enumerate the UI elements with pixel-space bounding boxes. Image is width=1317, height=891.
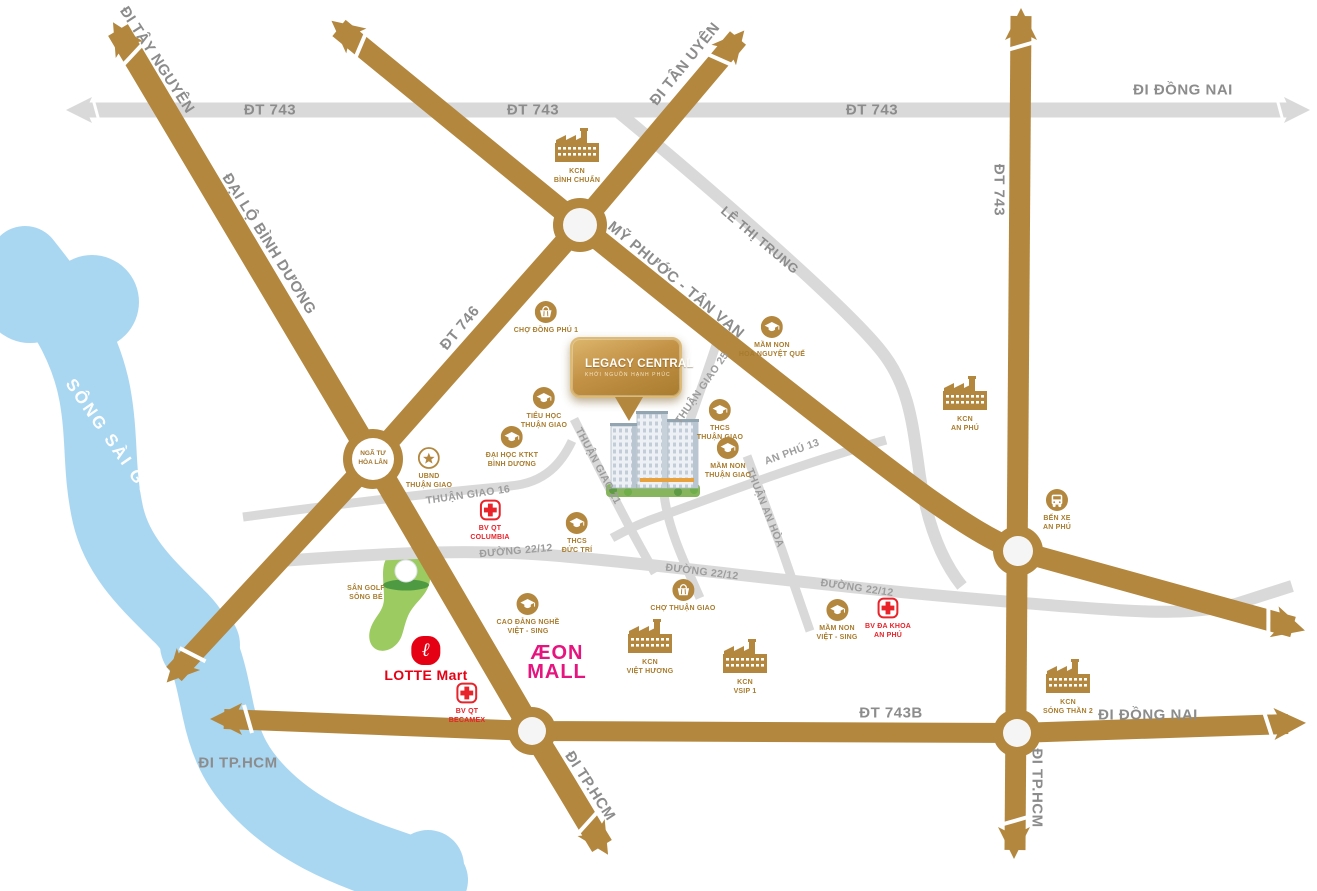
road-label-dt743-right: ĐT 743	[991, 164, 1008, 216]
road-label-di-dong-nai-bottom: ĐI ĐỒNG NAI	[1098, 707, 1198, 724]
school-icon	[709, 399, 731, 421]
factory-icon	[720, 639, 770, 675]
project-title: LEGACY CENTRAL	[585, 358, 694, 370]
landmark-label: MẦM NON HOA NGUYỆT QUẾ	[739, 341, 805, 359]
landmark-kcn-song-than-2: KCN SÓNG THẦN 2	[1043, 659, 1093, 716]
landmark-label: MẦM NON THUẬN GIAO	[705, 462, 751, 480]
landmark-bv-da-khoa-an-phu: BV ĐA KHOA AN PHÚ	[865, 597, 911, 640]
landmark-label: KCN BÌNH CHUẨN	[554, 167, 600, 185]
road-label-dt743-top-3: ĐT 743	[846, 102, 898, 119]
landmark-label: BẾN XE AN PHÚ	[1043, 514, 1071, 532]
road-label-dt743-top-1: ĐT 743	[244, 102, 296, 119]
school-icon	[517, 593, 539, 615]
project-logo-card: LEGACY CENTRAL KHỞI NGUỒN HẠNH PHÚC	[570, 337, 682, 398]
bus-icon	[1046, 489, 1068, 511]
landmark-kcn-an-phu: KCN AN PHÚ	[940, 376, 990, 433]
landmark-label: BV QT BECAMEX	[449, 707, 485, 725]
landmark-ben-xe-an-phu: BẾN XE AN PHÚ	[1043, 489, 1071, 532]
landmark-label: UBND THUẬN GIAO	[406, 472, 452, 490]
landmark-label: THCS ĐỨC TRÍ	[562, 537, 593, 555]
landmark-label: KCN AN PHÚ	[951, 415, 979, 433]
school-icon	[761, 316, 783, 338]
road-label-di-tphcm-left: ĐI TP.HCM	[198, 755, 277, 772]
landmark-label: BV ĐA KHOA AN PHÚ	[865, 622, 911, 640]
landmark-cao-dang-nghe-viet-sing: CAO ĐẲNG NGHỀ VIỆT - SING	[497, 593, 560, 636]
landmark-tieu-hoc-thuan-giao: TIỂU HỌC THUẬN GIAO	[521, 387, 567, 430]
school-icon	[826, 599, 848, 621]
school-icon	[717, 437, 739, 459]
landmark-lotte-mart: ℓ LOTTE Mart	[384, 636, 467, 683]
aeon-logo-line2: MALL	[527, 663, 587, 682]
market-icon	[672, 579, 694, 601]
golf-ball-icon	[395, 560, 417, 582]
landmark-kcn-vsip-1: KCN VSIP 1	[720, 639, 770, 696]
school-icon	[501, 426, 523, 448]
landmark-label: CHỢ THUẬN GIAO	[650, 604, 715, 613]
factory-icon	[625, 619, 675, 655]
lotte-logo-icon: ℓ	[412, 636, 441, 665]
road-label-di-tphcm-right: ĐI TP.HCM	[1029, 748, 1046, 827]
landmark-kcn-binh-chuan: KCN BÌNH CHUẨN	[552, 128, 602, 185]
landmark-label: CHỢ ĐỒNG PHÚ 1	[514, 326, 578, 335]
project-building	[606, 411, 700, 497]
landmark-san-golf-song-be: SÂN GOLF SÔNG BÉ	[347, 581, 385, 602]
landmark-thcs-duc-tri: THCS ĐỨC TRÍ	[562, 512, 593, 555]
landmark-label: KCN VSIP 1	[734, 678, 757, 696]
landmark-label: CAO ĐẲNG NGHỀ VIỆT - SING	[497, 618, 560, 636]
factory-icon	[1043, 659, 1093, 695]
nga-tu-hoa-lan-label: NGÃ TƯ HÒA LÂN	[358, 450, 387, 468]
legacy-central-location-map: ĐI TÂY NGUYÊNĐT 743ĐT 743ĐT 743ĐI ĐỒNG N…	[0, 0, 1317, 891]
road-label-dt743b: ĐT 743B	[859, 705, 923, 722]
landmark-label: SÂN GOLF SÔNG BÉ	[347, 584, 385, 602]
landmark-thcs-thuan-giao: THCS THUẬN GIAO	[697, 399, 743, 442]
school-icon	[533, 387, 555, 409]
hospital-icon	[479, 499, 501, 521]
star-icon	[418, 447, 440, 469]
landmark-cho-dong-phu-1: CHỢ ĐỒNG PHÚ 1	[514, 301, 578, 335]
project-subtitle: KHỞI NGUỒN HẠNH PHÚC	[585, 372, 694, 378]
lotte-mart-label: LOTTE Mart	[384, 667, 467, 683]
landmark-label: KCN VIỆT HƯƠNG	[627, 658, 674, 676]
road-label-di-dong-nai-top: ĐI ĐỒNG NAI	[1133, 82, 1233, 99]
landmark-dai-hoc-ktkt-binh-duong: ĐẠI HỌC KTKT BÌNH DƯƠNG	[486, 426, 539, 469]
landmark-label: ĐẠI HỌC KTKT BÌNH DƯƠNG	[486, 451, 539, 469]
hospital-icon	[877, 597, 899, 619]
landmark-ubnd-thuan-giao: UBND THUẬN GIAO	[406, 447, 452, 490]
landmark-mam-non-viet-sing: MẦM NON VIỆT - SING	[816, 599, 857, 642]
landmark-mam-non-hoa-nguyet-que: MẦM NON HOA NGUYỆT QUẾ	[739, 316, 805, 359]
factory-icon	[940, 376, 990, 412]
hospital-icon	[456, 682, 478, 704]
school-icon	[566, 512, 588, 534]
landmark-mam-non-thuan-giao: MẦM NON THUẬN GIAO	[705, 437, 751, 480]
factory-icon	[552, 128, 602, 164]
landmark-bv-qt-becamex: BV QT BECAMEX	[449, 682, 485, 725]
landmark-label: MẦM NON VIỆT - SING	[816, 624, 857, 642]
road-label-dt743-top-2: ĐT 743	[507, 102, 559, 119]
landmark-kcn-viet-huong: KCN VIỆT HƯƠNG	[625, 619, 675, 676]
landmark-cho-thuan-giao: CHỢ THUẬN GIAO	[650, 579, 715, 613]
market-icon	[535, 301, 557, 323]
landmark-label: BV QT COLUMBIA	[470, 524, 509, 542]
landmark-label: KCN SÓNG THẦN 2	[1043, 698, 1093, 716]
landmark-aeon-mall: ÆON MALL	[527, 644, 587, 682]
landmark-bv-qt-columbia: BV QT COLUMBIA	[470, 499, 509, 542]
